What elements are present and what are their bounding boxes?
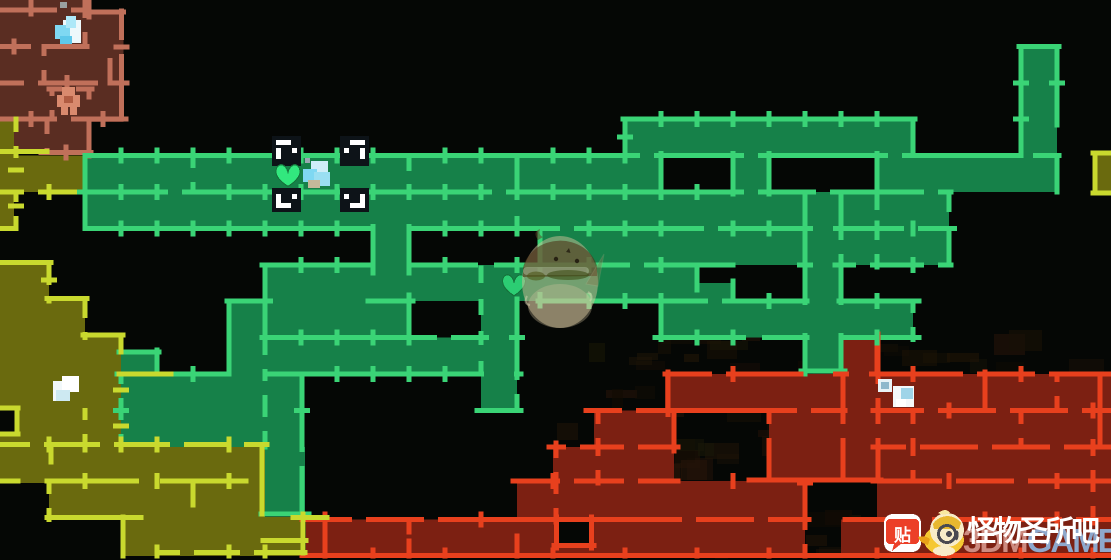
svg-text:贴: 贴: [894, 525, 911, 545]
svg-text:怪物圣所吧: 怪物圣所吧: [967, 515, 1100, 548]
